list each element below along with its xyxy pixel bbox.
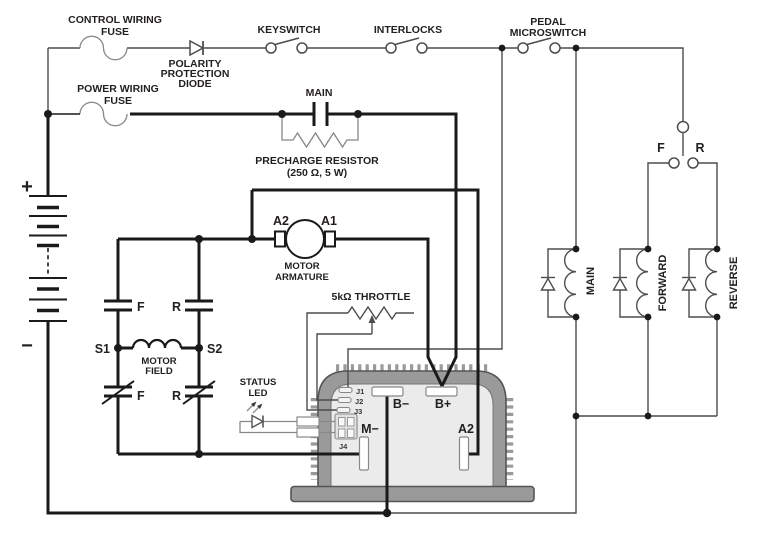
terminal-m-minus: [360, 437, 369, 470]
main-coil: [565, 249, 576, 317]
coil-main-label: MAIN: [585, 267, 597, 295]
terminal-b-minus: [372, 387, 403, 396]
junction-dot: [573, 413, 580, 420]
main-flyback-diode: [542, 279, 555, 291]
reverse-flyback-diode: [683, 279, 696, 291]
terminal-a2: [460, 437, 469, 470]
schematic-page: CONTROL WIRING FUSE POLARITY PROTECTION …: [0, 0, 760, 536]
forward-flyback-diode: [614, 279, 627, 291]
junction-dot: [645, 314, 652, 321]
armature-circle: [286, 220, 324, 258]
junction-dot: [114, 344, 122, 352]
battery-plus-label: +: [21, 176, 33, 198]
interlocks-contact-left: [386, 43, 396, 53]
junction-dot: [645, 413, 652, 420]
status-led-symbol: [252, 416, 263, 428]
pin-j3: [337, 408, 350, 413]
j4-pin-2: [348, 418, 355, 427]
led-triangle: [252, 416, 263, 428]
power-fuse-label-2: FUSE: [104, 95, 132, 107]
led-connector-top: [297, 417, 319, 426]
polarity-diode-symbol: [190, 41, 203, 55]
field-r-bottom-label: R: [172, 389, 181, 403]
j4-pin-4: [348, 429, 355, 438]
interlocks-blade: [395, 38, 419, 45]
forward-diode-branch: [620, 249, 648, 317]
field-f-top-label: F: [137, 300, 145, 314]
junction-dot: [573, 314, 580, 321]
junction-dot: [195, 450, 203, 458]
m-minus-label: M−: [361, 422, 379, 436]
pin-j2: [338, 398, 351, 403]
reverse-coil: [706, 249, 717, 317]
power-fuse-label-1: POWER WIRING: [77, 83, 159, 95]
keyswitch-label: KEYSWITCH: [258, 24, 321, 36]
microswitch-contact-left: [518, 43, 528, 53]
armature-brush-right: [325, 232, 335, 247]
fr-switch-common: [678, 122, 689, 133]
led-connector-bottom: [297, 428, 319, 437]
battery-symbol: [29, 196, 67, 321]
precharge-label-1: PRECHARGE RESISTOR: [255, 155, 379, 167]
control-fuse-label-1: CONTROL WIRING: [68, 14, 162, 26]
junction-dot: [499, 45, 506, 52]
control-fuse-symbol: [80, 36, 127, 59]
main-contact-label: MAIN: [306, 87, 333, 99]
field-r-no-contact: [185, 301, 213, 310]
motor-field-label-2: FIELD: [145, 366, 173, 377]
fr-switch-forward-contact: [669, 158, 679, 168]
junction-dot: [195, 344, 203, 352]
diode-triangle: [190, 41, 203, 55]
precharge-resistor-symbol: [282, 114, 358, 147]
wiring-diagram: CONTROL WIRING FUSE POLARITY PROTECTION …: [0, 0, 760, 536]
wire-r-to-reverse-coil: [698, 163, 717, 249]
coil-forward-label: FORWARD: [657, 255, 669, 312]
b-plus-label: B+: [435, 397, 451, 411]
keyswitch-contact-right: [297, 43, 307, 53]
junction-dot: [278, 110, 286, 118]
junction-dot: [248, 235, 256, 243]
fr-switch-r-label: R: [695, 141, 704, 155]
keyswitch-blade: [275, 38, 299, 45]
throttle-resistor: [348, 307, 414, 319]
main-diode-branch: [548, 249, 576, 317]
forward-coil: [637, 249, 648, 317]
junction-dot: [573, 45, 580, 52]
field-f-no-contact: [104, 301, 132, 310]
j4-pin-3: [339, 429, 346, 438]
junction-dot: [195, 235, 203, 243]
field-f-bottom-label: F: [137, 389, 145, 403]
j4-label: J4: [339, 442, 348, 451]
junction-dot: [354, 110, 362, 118]
controller-mounting-base: [291, 487, 534, 502]
s2-label: S2: [207, 342, 222, 356]
a2-terminal-label: A2: [458, 422, 474, 436]
fr-switch-f-label: F: [657, 141, 665, 155]
j1-label: J1: [356, 387, 364, 396]
control-fuse-label-2: FUSE: [101, 26, 129, 38]
polarity-diode-label-3: DIODE: [178, 78, 211, 90]
j2-label: J2: [355, 397, 363, 406]
keyswitch-contact-left: [266, 43, 276, 53]
fr-switch-reverse-contact: [688, 158, 698, 168]
controller-housing: [291, 368, 534, 502]
switches: [266, 38, 698, 168]
junction-dot: [645, 246, 652, 253]
pedal-microswitch-label-2: MICROSWITCH: [510, 27, 586, 39]
motor-field-inductor: [133, 340, 181, 348]
reverse-diode-branch: [689, 249, 717, 317]
motor-armature-label-2: ARMATURE: [275, 272, 329, 283]
interlocks-contact-right: [417, 43, 427, 53]
microswitch-contact-right: [550, 43, 560, 53]
interlocks-label: INTERLOCKS: [374, 24, 442, 36]
j4-pin-1: [339, 418, 346, 427]
status-led-label-1: STATUS: [240, 377, 277, 388]
field-r-top-label: R: [172, 300, 181, 314]
junction-dot: [44, 110, 52, 118]
wire-f-to-forward-coil: [648, 163, 669, 249]
armature-brush-left: [275, 232, 285, 247]
junction-dot: [383, 509, 391, 517]
battery-minus-label: −: [21, 335, 33, 357]
junction-dot: [714, 246, 721, 253]
precharge-label-2: (250 Ω, 5 W): [287, 167, 347, 179]
junction-dot: [714, 314, 721, 321]
junction-dot: [573, 246, 580, 253]
wire-microswitch-to-fr-switch: [560, 48, 683, 122]
terminal-b-plus: [426, 387, 457, 396]
status-led-label-2: LED: [249, 388, 268, 399]
main-contact-bars: [314, 102, 327, 126]
s1-label: S1: [95, 342, 110, 356]
pin-j1: [339, 388, 352, 393]
coil-reverse-label: REVERSE: [728, 257, 740, 310]
motor-armature-label-1: MOTOR: [284, 261, 319, 272]
b-minus-label: B−: [393, 397, 409, 411]
throttle-label: 5kΩ THROTTLE: [331, 291, 410, 303]
armature-a2-label: A2: [273, 214, 289, 228]
armature-a1-label: A1: [321, 214, 337, 228]
j3-label: J3: [354, 407, 362, 416]
